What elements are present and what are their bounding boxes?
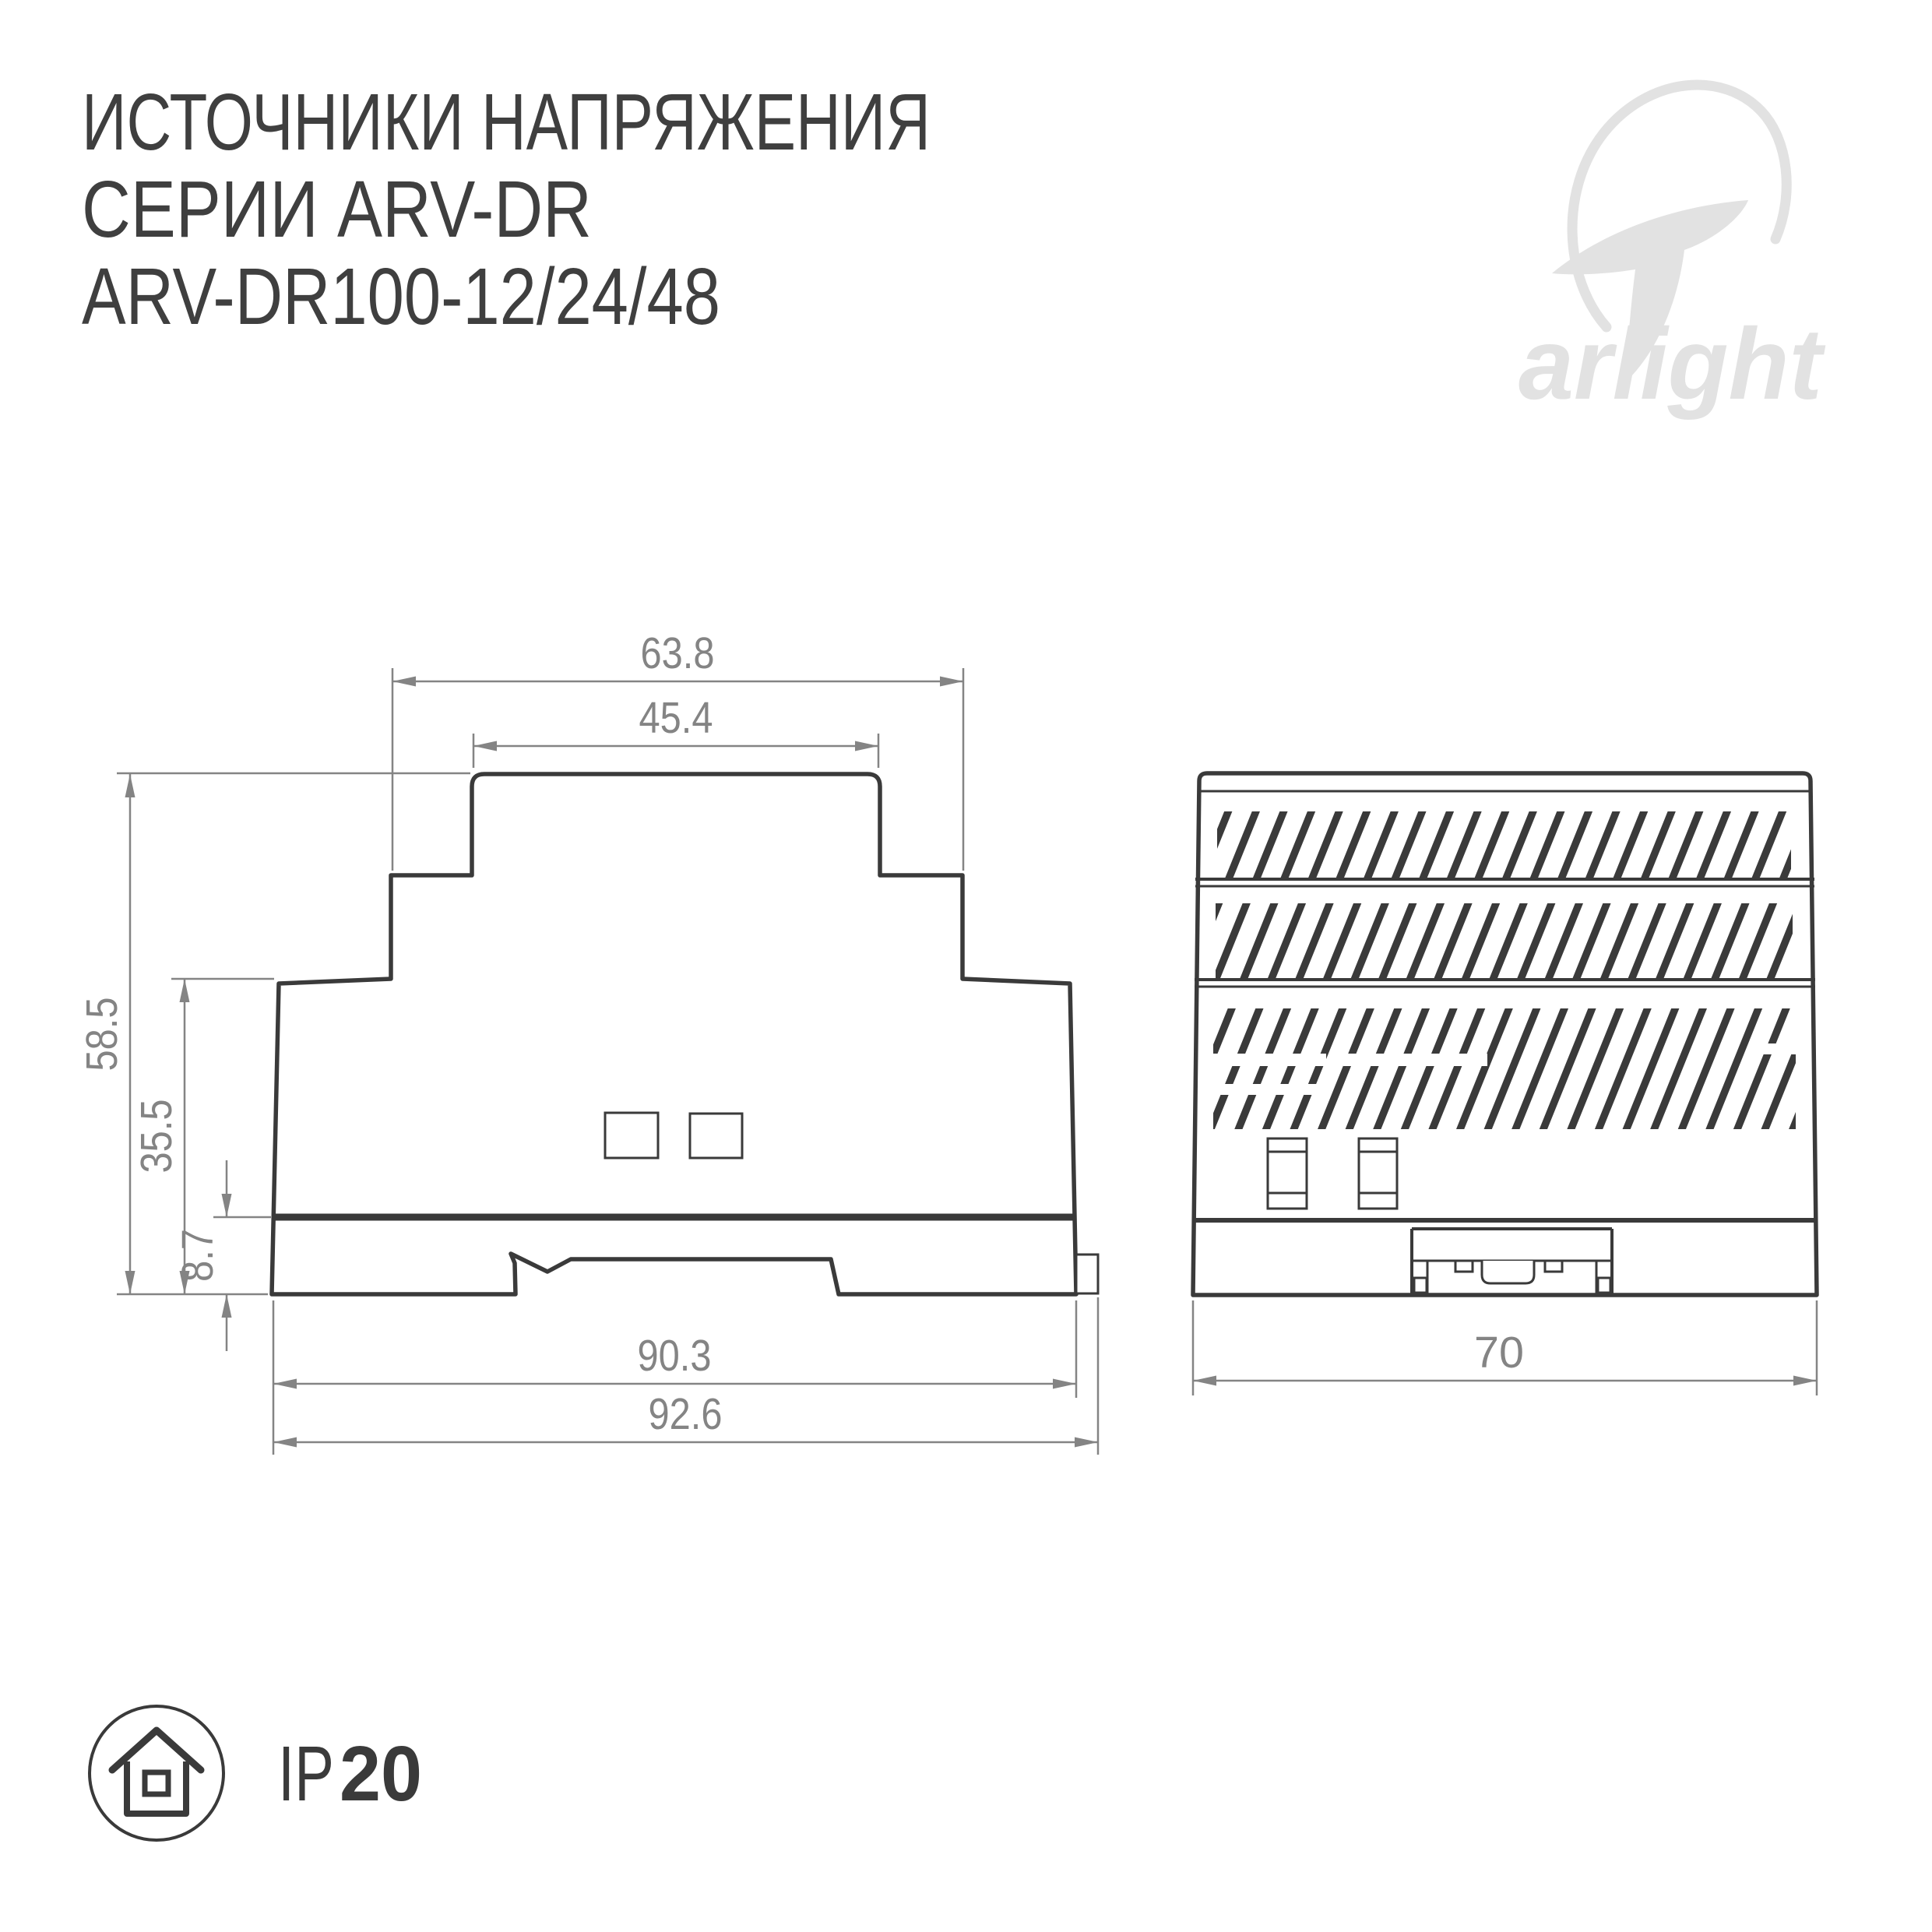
side-view-window-left [605,1113,658,1158]
dim-total-width: 92.6 [273,1389,1098,1448]
dim-body-width: 90.3 [273,1331,1076,1389]
ip-rating-value: 20 [340,1730,422,1818]
arlight-logo: arlight [1519,85,1826,421]
house-icon [112,1730,201,1814]
drawing-canvas: ИСТОЧНИКИ НАПРЯЖЕНИЯ СЕРИИ ARV-DR ARV-DR… [0,0,1932,1932]
dim-label-total-width: 92.6 [649,1389,723,1439]
front-view-vent-band-3 [1209,1008,1796,1129]
dim-label-top-outer-width: 63.8 [641,628,715,678]
front-view-vent-band-1 [1195,811,1814,886]
dim-base-height: 8.7 [173,1160,232,1351]
title-line-2: СЕРИИ ARV-DR [82,164,592,254]
front-view-drawing: 70 [1193,773,1817,1395]
dim-top-inner-width: 45.4 [473,693,878,751]
dim-label-total-height: 58.5 [77,998,127,1072]
dim-total-height: 58.5 [77,774,135,1294]
title-line-1: ИСТОЧНИКИ НАПРЯЖЕНИЯ [82,77,931,167]
dim-label-body-height: 35.5 [132,1100,181,1174]
title-line-3: ARV-DR100-12/24/48 [82,252,720,341]
dim-label-front-width: 70 [1474,1328,1524,1378]
dim-front-width: 70 [1193,1300,1817,1395]
arlight-logo-text: arlight [1519,307,1826,421]
dim-label-top-inner-width: 45.4 [639,693,713,743]
side-view-right-tab [1076,1255,1098,1293]
page-title: ИСТОЧНИКИ НАПРЯЖЕНИЯ СЕРИИ ARV-DR ARV-DR… [82,77,931,341]
ip-prefix-label: IP [278,1730,334,1818]
ip-rating-badge: IP 20 [90,1706,422,1840]
side-view-drawing: 63.8 45.4 58.5 35.5 8.7 [77,628,1098,1455]
dim-label-body-width: 90.3 [638,1331,712,1381]
front-view-vent-band-2 [1195,903,1815,987]
side-view-window-right [690,1114,742,1158]
dim-label-base-height: 8.7 [173,1229,223,1282]
spec-sheet-page: ИСТОЧНИКИ НАПРЯЖЕНИЯ СЕРИИ ARV-DR ARV-DR… [0,0,1932,1932]
dim-top-outer-width: 63.8 [392,628,963,687]
